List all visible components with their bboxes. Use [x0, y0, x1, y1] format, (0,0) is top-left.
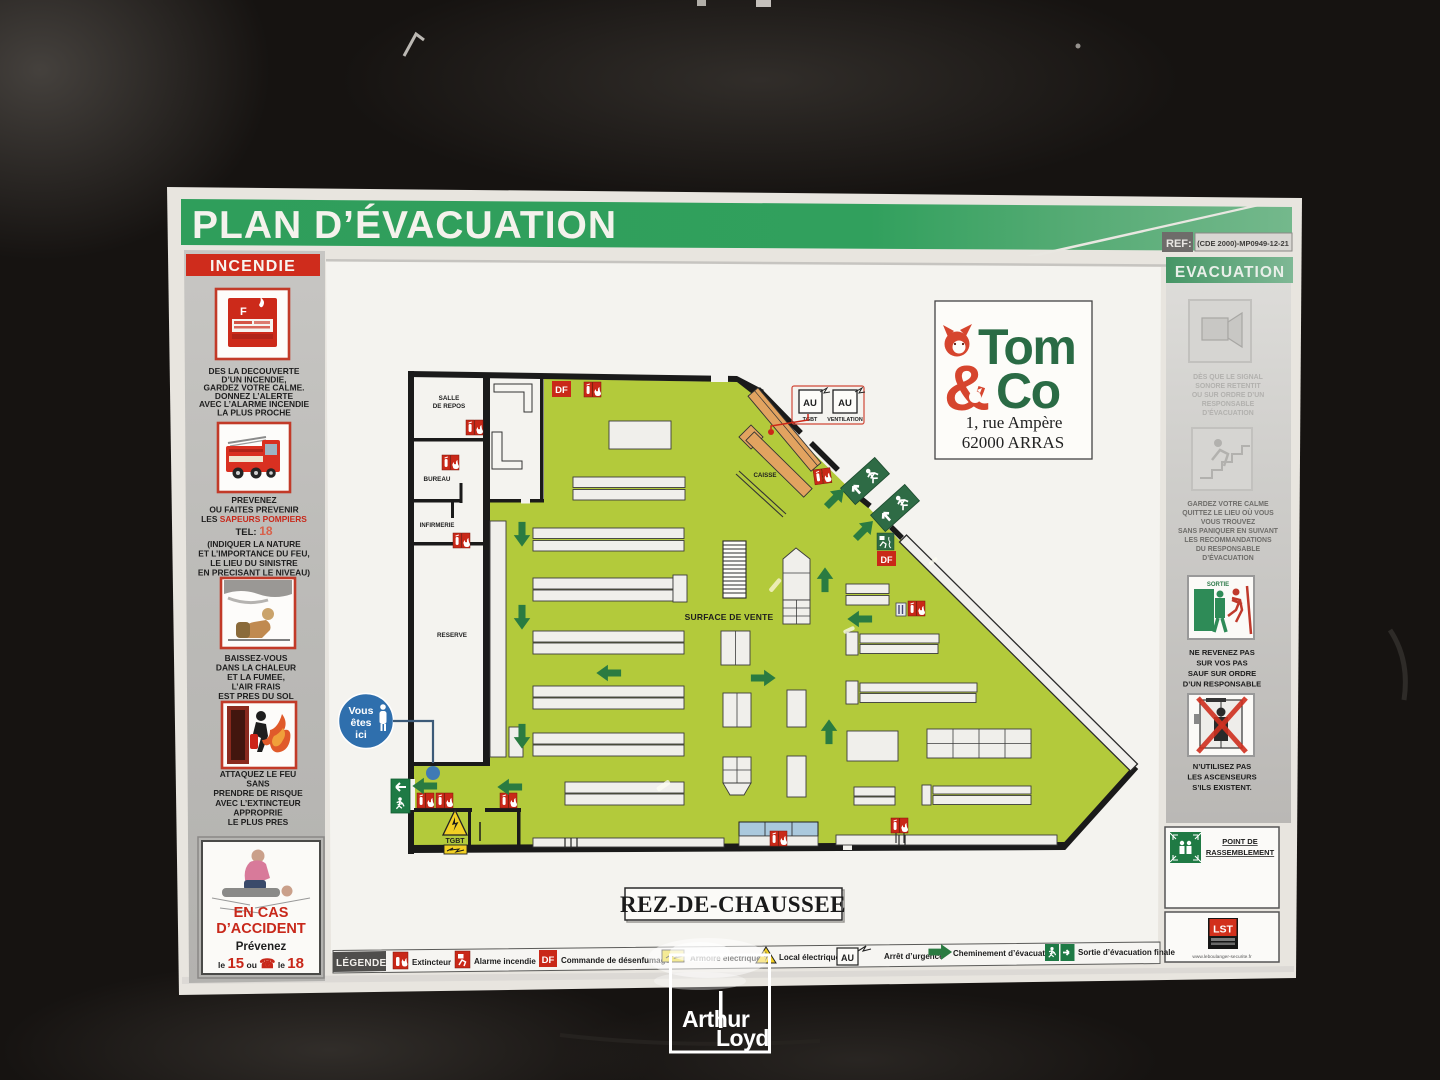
svg-text:SUR VOS PAS: SUR VOS PAS — [1196, 659, 1247, 668]
svg-text:Prévenez: Prévenez — [236, 941, 287, 953]
svg-text:Loyd: Loyd — [716, 1025, 769, 1051]
svg-text:QUITTEZ LE LIEU OÙ VOUS: QUITTEZ LE LIEU OÙ VOUS — [1182, 508, 1274, 517]
svg-text:EST PRES DU SOL: EST PRES DU SOL — [218, 691, 293, 701]
svg-text:F: F — [240, 306, 247, 318]
svg-text:Cheminement d’évacuation: Cheminement d’évacuation — [953, 949, 1057, 958]
svg-text:BAISSEZ-VOUS: BAISSEZ-VOUS — [225, 653, 288, 663]
svg-text:EN CAS: EN CAS — [234, 905, 289, 921]
svg-text:D’ÉVACUATION: D’ÉVACUATION — [1202, 408, 1253, 417]
svg-text:OU SUR ORDRE D’UN: OU SUR ORDRE D’UN — [1192, 392, 1264, 399]
svg-text:êtes: êtes — [350, 717, 371, 729]
svg-text:PLAN D’ÉVACUATION: PLAN D’ÉVACUATION — [192, 203, 617, 247]
svg-text:D’UN RESPONSABLE: D’UN RESPONSABLE — [1183, 680, 1261, 689]
svg-text:NE REVENEZ PAS: NE REVENEZ PAS — [1189, 648, 1255, 657]
svg-text:RASSEMBLEMENT: RASSEMBLEMENT — [1206, 848, 1275, 857]
svg-text:RESERVE: RESERVE — [437, 632, 467, 639]
svg-text:1, rue Ampère: 1, rue Ampère — [966, 413, 1063, 432]
svg-text:ATTAQUEZ LE FEU: ATTAQUEZ LE FEU — [220, 769, 296, 779]
svg-text:SURFACE DE VENTE: SURFACE DE VENTE — [685, 612, 774, 622]
svg-text:APPROPRIE: APPROPRIE — [233, 807, 283, 817]
svg-text:LST: LST — [1213, 924, 1233, 936]
svg-text:LES RECOMMANDATIONS: LES RECOMMANDATIONS — [1184, 537, 1272, 544]
svg-text:EN PRECISANT LE NIVEAU): EN PRECISANT LE NIVEAU) — [198, 568, 310, 578]
svg-text:LÉGENDE: LÉGENDE — [336, 956, 386, 969]
svg-text:S’ILS EXISTENT.: S’ILS EXISTENT. — [1192, 783, 1252, 792]
svg-text:LE LIEU DU SINISTRE: LE LIEU DU SINISTRE — [210, 558, 298, 568]
svg-text:INCENDIE: INCENDIE — [210, 258, 296, 275]
svg-text:PREVENEZ: PREVENEZ — [231, 495, 276, 505]
svg-text:Extincteur: Extincteur — [412, 958, 451, 967]
svg-text:CAISSE: CAISSE — [753, 472, 776, 479]
svg-text:SANS PANIQUER EN SUIVANT: SANS PANIQUER EN SUIVANT — [1178, 528, 1279, 535]
svg-text:GARDEZ VOTRE CALME: GARDEZ VOTRE CALME — [1187, 501, 1269, 508]
svg-text:REZ-DE-CHAUSSEE: REZ-DE-CHAUSSEE — [620, 892, 846, 917]
svg-text:SONORE RETENTIT: SONORE RETENTIT — [1195, 383, 1261, 390]
svg-text:SANS: SANS — [246, 779, 270, 789]
svg-text:Sortie d’évacuation finale: Sortie d’évacuation finale — [1078, 948, 1175, 957]
svg-text:VOUS TROUVEZ: VOUS TROUVEZ — [1201, 519, 1256, 526]
svg-text:AU: AU — [838, 398, 852, 409]
svg-text:REF:: REF: — [1166, 238, 1192, 250]
svg-text:TGBT: TGBT — [445, 838, 465, 845]
svg-text:DÈS QUE LE SIGNAL: DÈS QUE LE SIGNAL — [1193, 372, 1263, 381]
svg-text:SAUF SUR ORDRE: SAUF SUR ORDRE — [1188, 669, 1256, 678]
svg-text:D’ACCIDENT: D’ACCIDENT — [216, 921, 306, 937]
svg-text:ET LA FUMEE,: ET LA FUMEE, — [227, 672, 285, 682]
svg-text:LE PLUS PRES: LE PLUS PRES — [228, 817, 289, 827]
svg-text:VENTILATION: VENTILATION — [827, 417, 863, 423]
svg-text:DE REPOS: DE REPOS — [433, 403, 466, 410]
svg-text:DF: DF — [555, 385, 568, 396]
svg-text:OU FAITES PREVENIR: OU FAITES PREVENIR — [209, 505, 298, 515]
svg-text:AVEC L’EXTINCTEUR: AVEC L’EXTINCTEUR — [215, 798, 300, 808]
svg-text:PRENDRE DE RISQUE: PRENDRE DE RISQUE — [213, 788, 303, 798]
svg-text:L’AIR FRAIS: L’AIR FRAIS — [232, 682, 281, 692]
svg-text:RESPONSABLE: RESPONSABLE — [1202, 401, 1255, 408]
svg-text:SORTIE: SORTIE — [1207, 582, 1229, 588]
svg-text:AU: AU — [803, 398, 817, 409]
svg-text:POINT DE: POINT DE — [1222, 837, 1257, 846]
svg-text:LES SAPEURS POMPIERS: LES SAPEURS POMPIERS — [201, 514, 307, 524]
svg-text:(INDIQUER LA NATURE: (INDIQUER LA NATURE — [207, 539, 301, 549]
svg-text:EVACUATION: EVACUATION — [1175, 264, 1285, 281]
svg-text:SALLE: SALLE — [439, 395, 460, 402]
svg-text:BUREAU: BUREAU — [424, 476, 451, 483]
svg-text:N’UTILISEZ PAS: N’UTILISEZ PAS — [1193, 762, 1252, 771]
svg-text:62000 ARRAS: 62000 ARRAS — [962, 433, 1065, 452]
svg-text:Co: Co — [996, 363, 1060, 419]
svg-text:INFIRMERIE: INFIRMERIE — [420, 523, 455, 529]
svg-text:Alarme incendie: Alarme incendie — [474, 957, 536, 966]
svg-text:DANS LA CHALEUR: DANS LA CHALEUR — [216, 663, 296, 673]
svg-text:ici: ici — [355, 729, 367, 741]
svg-text:DF: DF — [881, 555, 893, 565]
svg-text:(CDE 2000)-MP0949-12-21: (CDE 2000)-MP0949-12-21 — [1197, 239, 1289, 248]
svg-text:D’ÉVACUATION: D’ÉVACUATION — [1202, 553, 1253, 562]
svg-text:Vous: Vous — [349, 705, 374, 717]
svg-text:le 15 ou ☎ le 18: le 15 ou ☎ le 18 — [218, 955, 304, 972]
svg-text:www.leboulanger-securite.fr: www.leboulanger-securite.fr — [1192, 954, 1252, 960]
svg-text:AU: AU — [841, 953, 854, 963]
svg-text:LES ASCENSEURS: LES ASCENSEURS — [1187, 773, 1256, 782]
svg-text:LA PLUS PROCHE: LA PLUS PROCHE — [217, 408, 291, 418]
svg-text:TEL: 18: TEL: 18 — [235, 524, 272, 538]
svg-text:DU RESPONSABLE: DU RESPONSABLE — [1196, 546, 1261, 553]
svg-text:ET L’IMPORTANCE DU FEU,: ET L’IMPORTANCE DU FEU, — [198, 549, 310, 559]
svg-text:Local électrique: Local électrique — [779, 953, 840, 962]
svg-text:DF: DF — [542, 955, 555, 966]
